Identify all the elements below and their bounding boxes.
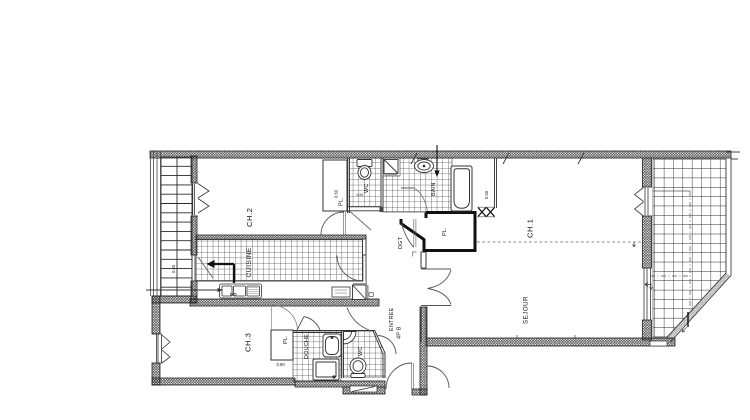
svg-text:DGT: DGT (398, 236, 404, 249)
svg-text:CUISINE: CUISINE (246, 247, 253, 277)
svg-text:1.00: 1.00 (356, 193, 363, 197)
svg-text:BAIN: BAIN (431, 182, 437, 196)
svg-text:CH.2: CH.2 (245, 208, 254, 227)
svg-text:4P B: 4P B (397, 326, 403, 339)
svg-text:SEJOUR: SEJOUR (523, 296, 530, 324)
svg-text:PL.: PL. (442, 227, 448, 236)
svg-text:WC: WC (364, 183, 370, 193)
svg-text:PL.: PL. (283, 335, 289, 344)
svg-text:0.60: 0.60 (277, 362, 286, 367)
svg-text:DOUCHE: DOUCHE (304, 334, 310, 359)
svg-text:0.60: 0.60 (334, 189, 339, 198)
svg-text:PL.: PL. (339, 197, 345, 206)
svg-text:0.60: 0.60 (171, 264, 176, 273)
svg-text:CH.1: CH.1 (526, 219, 535, 238)
svg-text:CH.3: CH.3 (244, 333, 253, 352)
svg-text:ENTREE: ENTREE (389, 307, 395, 331)
svg-text:0.60: 0.60 (484, 190, 489, 199)
svg-text:WC: WC (358, 346, 364, 356)
